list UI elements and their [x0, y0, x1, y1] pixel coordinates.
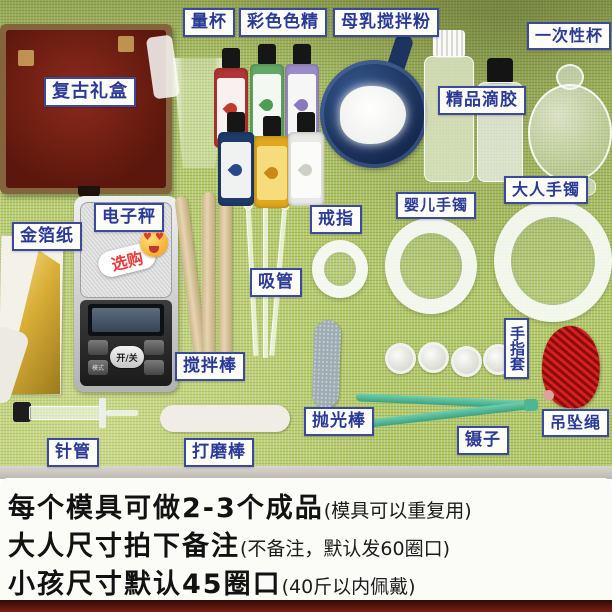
color-drop-icon: [259, 97, 276, 114]
finger-cot: [418, 342, 449, 373]
scale-display: [92, 308, 160, 332]
label-electronic-scale: 电子秤: [94, 203, 164, 232]
bottle-body: [218, 132, 254, 206]
label-adult-bracelet: 大人手镯: [504, 176, 588, 204]
bottle-cap: [297, 112, 315, 132]
scale-button: [144, 360, 164, 375]
mode-button: 模式: [88, 360, 108, 375]
footer-line: 每个模具可做2-3个成品 (模具可以重复用): [8, 486, 606, 524]
tweezers: [351, 387, 538, 429]
pigment-bottle-white: [288, 112, 324, 206]
sanding-stick: [160, 405, 290, 432]
bottle-cap: [258, 44, 276, 64]
bottle-body: [254, 136, 290, 208]
footer-main-text: 小孩尺寸默认45圈口: [8, 562, 282, 601]
label-sanding-stick: 打磨棒: [184, 438, 254, 467]
gold-seal: [118, 36, 134, 52]
baby-bracelet-mold: [385, 218, 477, 314]
adult-bracelet-mold: [494, 200, 612, 322]
ring-mold: [312, 240, 368, 298]
heart-eye-icon: ♥: [143, 233, 152, 243]
syringe-flange: [99, 398, 106, 428]
hardener-bottle-cap: [487, 58, 513, 84]
label-finger-cots: 手指套: [504, 318, 529, 379]
heart-eye-icon: ♥: [155, 233, 164, 243]
label-premium-resin: 精品滴胶: [438, 86, 526, 115]
label-pipette: 吸管: [250, 268, 302, 297]
tweezers-tip: [524, 399, 538, 411]
syringe-tip: [106, 410, 138, 416]
label-disposable-cup: 一次性杯: [527, 22, 611, 50]
footer-note-text: (40斤以内佩戴): [282, 572, 416, 599]
bottle-label: [291, 142, 321, 198]
footer-note-text: (不备注，默认发60圈口): [240, 534, 450, 561]
bottom-maroon-strip: [0, 600, 612, 612]
footer-panel: 每个模具可做2-3个成品 (模具可以重复用) 大人尺寸拍下备注 (不备注，默认发…: [0, 478, 612, 600]
gold-seal: [18, 50, 34, 66]
disposable-cup: [528, 84, 612, 182]
scale-button: [144, 340, 164, 355]
color-drop-icon: [294, 97, 311, 114]
scale-button: [88, 340, 108, 355]
bottle-cap: [222, 48, 240, 68]
pigment-bottle-amber: [254, 116, 290, 208]
label-baby-bracelet: 婴儿手镯: [396, 192, 476, 219]
resin-bottle: [424, 56, 474, 182]
label-vintage-gift-box: 复古礼盒: [44, 77, 136, 107]
color-drop-icon: [264, 165, 281, 182]
label-color-pigment: 彩色色精: [239, 8, 327, 37]
label-tweezers: 镊子: [457, 426, 509, 455]
stir-stick: [202, 192, 215, 358]
footer-main-text: 大人尺寸拍下备注: [8, 524, 240, 563]
syringe-barrel: [29, 406, 101, 420]
footer-main-text: 每个模具可做2-3个成品: [8, 486, 324, 525]
label-pendant-rope: 吊坠绳: [542, 409, 609, 437]
footer-line: 小孩尺寸默认45圈口 (40斤以内佩戴): [8, 562, 606, 600]
label-milk-stir-powder: 母乳搅拌粉: [333, 8, 439, 37]
bottle-label: [257, 146, 287, 200]
label-ring: 戒指: [310, 205, 362, 234]
label-polish-stick: 抛光棒: [304, 407, 374, 436]
bottle-label: [221, 142, 251, 198]
label-gold-foil: 金箔纸: [12, 222, 82, 251]
label-syringe: 针管: [47, 438, 99, 467]
bottle-cap: [227, 112, 245, 132]
finger-cot: [385, 343, 416, 374]
color-drop-icon: [298, 162, 315, 179]
rope-bead: [543, 390, 554, 401]
label-stir-stick: 搅拌棒: [175, 352, 245, 381]
power-button: 开/关: [110, 346, 144, 368]
footer-note-text: (模具可以重复用): [324, 496, 472, 523]
pigment-bottle-navy: [218, 112, 254, 206]
heart-eyes-emoji-icon: ♥ ♥: [140, 229, 168, 257]
label-measuring-cup: 量杯: [183, 8, 235, 37]
stir-stick: [219, 192, 232, 358]
polish-stick: [311, 320, 341, 409]
footer-line: 大人尺寸拍下备注 (不备注，默认发60圈口): [8, 524, 606, 562]
finger-cot: [451, 346, 482, 377]
bottle-cap: [263, 116, 281, 136]
product-photo: 模式 开/关 选购 ♥ ♥ 量杯 彩色色精 母乳搅拌粉 一次性: [0, 0, 612, 612]
bottle-cap: [293, 44, 311, 64]
bottle-body: [288, 132, 324, 206]
color-drop-icon: [228, 162, 245, 179]
emoji-mouth: [149, 246, 159, 253]
